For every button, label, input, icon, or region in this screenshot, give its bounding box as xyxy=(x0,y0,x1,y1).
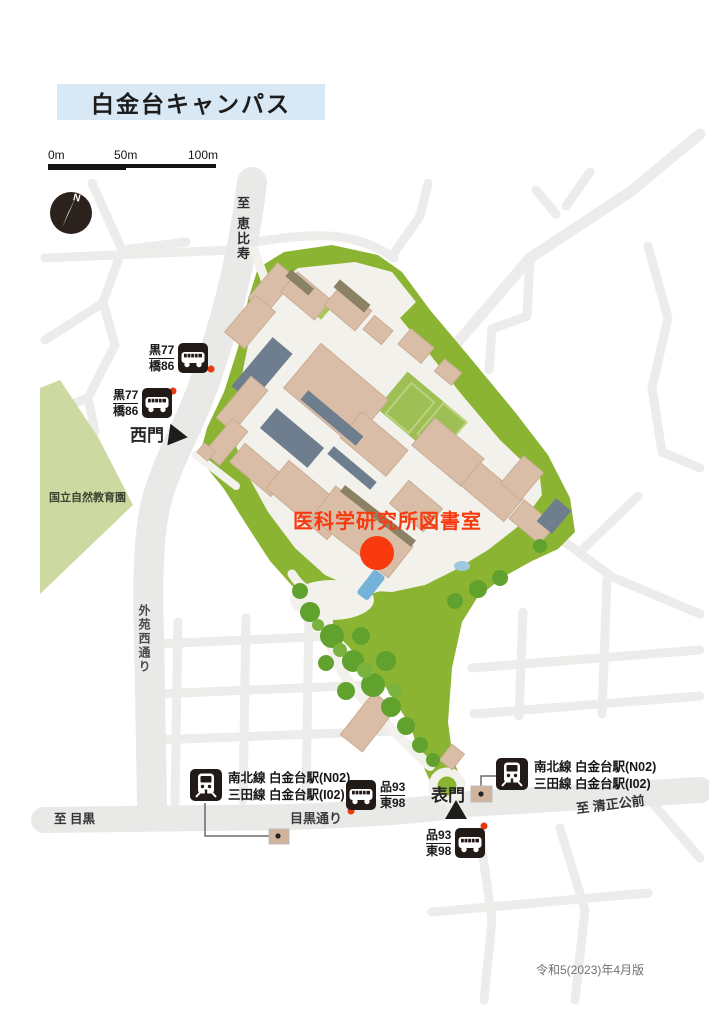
station-line-2: 三田線 白金台駅(I02) xyxy=(228,787,350,804)
campus-map-page: 白金台キャンパス 0m 50m 100m N 至 恵比寿 外苑西通り 至 目黒 … xyxy=(0,0,709,1024)
train-icon xyxy=(496,758,528,790)
scale-labels: 0m 50m 100m xyxy=(48,149,216,165)
main-gate-triangle-icon xyxy=(445,800,467,819)
west-gate-label: 西門 xyxy=(130,421,164,446)
road-label-to-meguro: 至 目黒 xyxy=(54,808,95,827)
bus-route-2: 東98 xyxy=(380,796,405,810)
bus-route-1: 品93 xyxy=(426,828,451,843)
page-title: 白金台キャンパス xyxy=(57,84,325,120)
bus-route-2: 橋86 xyxy=(149,359,174,373)
destination-label: 医科学研究所図書室 xyxy=(293,505,482,534)
scale-bar: 0m 50m 100m xyxy=(48,149,216,175)
scale-bar-line xyxy=(48,165,216,170)
bus-route-labels: 品93 東98 xyxy=(380,780,405,810)
scale-label-0: 0m xyxy=(48,148,65,162)
nature-park-label: 国立自然教育園 xyxy=(49,489,126,505)
station-line-labels: 南北線 白金台駅(N02) 三田線 白金台駅(I02) xyxy=(228,769,350,804)
version-note: 令和5(2023)年4月版 xyxy=(536,961,644,978)
bus-route-1: 品93 xyxy=(380,780,405,795)
bus-stop-west-upper: 黒77 橋86 xyxy=(149,343,208,373)
bus-route-2: 橋86 xyxy=(113,404,138,418)
station-line-labels: 南北線 白金台駅(N02) 三田線 白金台駅(I02) xyxy=(534,758,656,793)
road-label-gaien-nishi-dori: 外苑西通り xyxy=(136,604,153,674)
bus-route-1: 黒77 xyxy=(149,343,174,358)
bus-stop-meguro-south: 品93 東98 xyxy=(426,828,485,858)
road-label-to-ebisu: 至 恵比寿 xyxy=(233,196,252,262)
road-label-meguro-dori: 目黒通り xyxy=(290,808,342,827)
scale-label-100: 100m xyxy=(188,148,218,162)
destination-marker-dot xyxy=(360,536,394,570)
station-shirokanedai-right: 南北線 白金台駅(N02) 三田線 白金台駅(I02) xyxy=(496,758,656,793)
bus-icon xyxy=(455,828,485,858)
bus-icon xyxy=(178,343,208,373)
train-icon xyxy=(190,769,222,801)
compass-icon xyxy=(49,191,93,235)
bus-route-labels: 黒77 橋86 xyxy=(149,343,174,373)
station-line-1: 南北線 白金台駅(N02) xyxy=(534,759,656,776)
page-title-text: 白金台キャンパス xyxy=(91,85,291,119)
bus-route-labels: 黒77 橋86 xyxy=(113,388,138,418)
bus-icon xyxy=(142,388,172,418)
scale-label-50: 50m xyxy=(114,148,137,162)
station-line-1: 南北線 白金台駅(N02) xyxy=(228,770,350,787)
station-line-2: 三田線 白金台駅(I02) xyxy=(534,776,656,793)
bus-route-labels: 品93 東98 xyxy=(426,828,451,858)
bus-route-2: 東98 xyxy=(426,844,451,858)
bus-stop-west-lower: 黒77 橋86 xyxy=(113,388,172,418)
bus-stop-meguro-north: 品93 東98 xyxy=(346,780,405,810)
bus-route-1: 黒77 xyxy=(113,388,138,403)
compass-rose: N xyxy=(49,191,93,235)
bus-icon xyxy=(346,780,376,810)
station-shirokanedai-left: 南北線 白金台駅(N02) 三田線 白金台駅(I02) xyxy=(190,769,350,804)
